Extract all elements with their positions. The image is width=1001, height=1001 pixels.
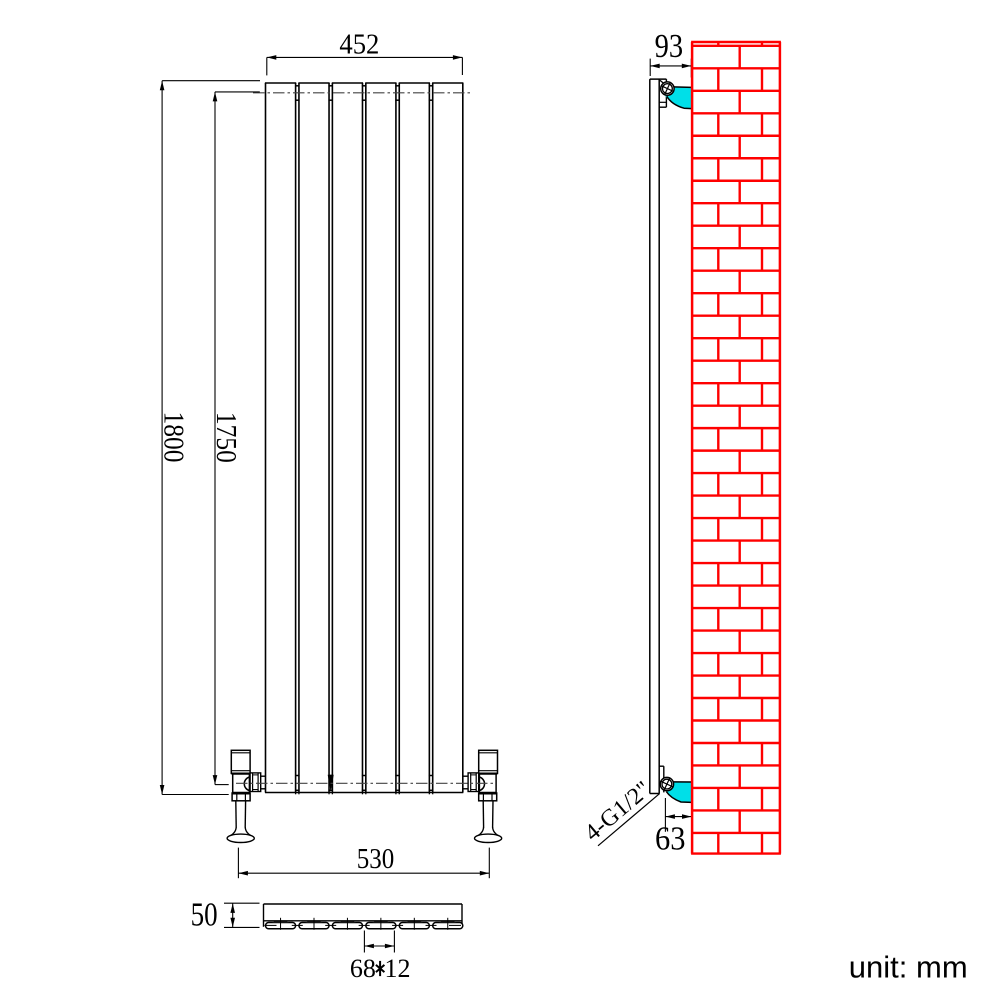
svg-text:50: 50	[191, 897, 218, 934]
svg-text:530: 530	[357, 843, 395, 875]
svg-text:452: 452	[339, 29, 379, 61]
svg-text:1750: 1750	[210, 412, 242, 463]
svg-text:93: 93	[655, 28, 684, 65]
svg-text:unit: mm: unit: mm	[849, 950, 968, 985]
svg-text:68: 68	[350, 954, 376, 983]
svg-text:63: 63	[655, 820, 686, 857]
svg-text:1800: 1800	[158, 412, 190, 463]
svg-text:12: 12	[385, 954, 411, 983]
